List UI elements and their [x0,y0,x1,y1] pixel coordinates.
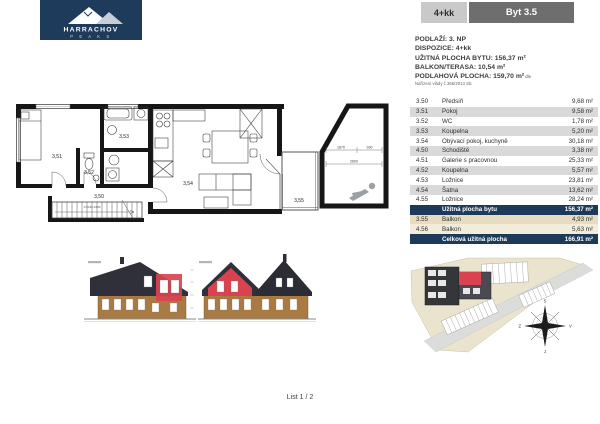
room-label-350: 3,50 [94,194,104,200]
elevation-west [84,257,196,322]
stair-note: 17x180,4/250 [84,205,101,209]
elevations [84,254,316,322]
room-label-355: 3,55 [294,198,304,204]
compass-north: S [544,299,547,304]
room-label-351: 3,51 [52,154,62,160]
site-unit-highlight [459,272,481,285]
floor-plan-drawing: 1670 930 2600 3,51 3,52 3,53 3,50 3,54 3… [16,104,386,222]
compass-south: J [544,349,546,354]
sheet-number: List 1 / 2 [0,394,600,401]
elevation-label-smudge [88,261,101,263]
site-plan: S V J Z [411,258,593,354]
compass-star [524,305,566,347]
staircase [52,200,142,220]
level-marks [190,270,194,308]
floor-plan-sheet: HARRACHOV P E A K S 4+kk Byt 3.5 PODLAŽÍ… [0,0,600,424]
compass-east: V [569,324,572,329]
room-labels: 3,51 3,52 3,53 3,50 3,54 3,55 17x180,4/2… [52,134,304,209]
balcony-glass-wall [260,154,283,209]
elevation-label-smudge [199,261,212,263]
dim-label-930: 930 [367,145,373,149]
section-detail: 1670 930 2600 [322,106,386,206]
room-label-354: 3,54 [183,181,193,187]
room-label-352: 3,52 [84,170,94,176]
architectural-drawings: 1670 930 2600 3,51 3,52 3,53 3,50 3,54 3… [0,0,600,424]
elevation-north [198,254,316,322]
dim-label-2600: 2600 [350,159,358,163]
dim-label-1670: 1670 [337,145,345,149]
room-label-353: 3,53 [119,134,129,140]
compass-west: Z [518,324,521,329]
